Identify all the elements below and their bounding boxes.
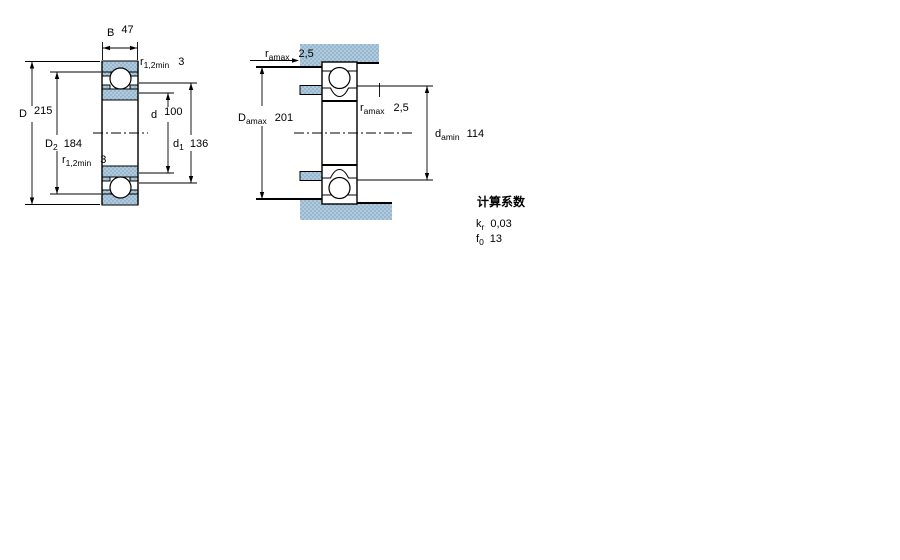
calculation-factors: 计算系数 kr0,03 f013 bbox=[476, 194, 526, 247]
ball-top bbox=[110, 68, 131, 89]
dim-r12min-bottom-label: r1,2min3 bbox=[62, 154, 106, 168]
dim-shoulder-diameter-d1: d1136 bbox=[139, 83, 215, 183]
housing-section bbox=[256, 44, 392, 220]
front-view-drawing: B47 D215 D2184 bbox=[16, 24, 215, 205]
dim-ra-mid-label: ramax2,5 bbox=[360, 102, 409, 116]
dim-D2-label: D2184 bbox=[45, 138, 82, 152]
calculation-factors-heading: 计算系数 bbox=[477, 194, 526, 209]
ball-bottom bbox=[110, 177, 131, 198]
dim-recess-diameter-D2: D2184 bbox=[42, 72, 101, 194]
dim-r12min-top-label: r1,2min3 bbox=[140, 56, 184, 70]
dim-Da-label: Damax201 bbox=[238, 112, 293, 126]
dim-housing-abutment-Da: Damax201 bbox=[238, 67, 293, 199]
dim-bore-diameter-d: d100 bbox=[139, 93, 185, 173]
calc-factor-f0: f013 bbox=[476, 233, 502, 247]
dim-ra-top-label: ramax2,5 bbox=[265, 48, 314, 62]
mounted-view-drawing: Damax201 ramax2,5 ramax2,5 damin114 bbox=[238, 44, 484, 220]
dim-shaft-abutment-da: damin114 bbox=[358, 86, 485, 180]
calc-factor-kr: kr0,03 bbox=[476, 218, 512, 232]
dim-fillet-ra-mid: ramax2,5 bbox=[360, 83, 409, 116]
dim-d1-label: d1136 bbox=[173, 138, 208, 152]
ball-top bbox=[329, 68, 350, 89]
bearing-dimension-figure: B47 D215 D2184 bbox=[0, 0, 900, 560]
ball-bottom bbox=[329, 178, 350, 199]
dim-B-label: B47 bbox=[107, 24, 134, 39]
dim-da-label: damin114 bbox=[435, 128, 484, 142]
technical-drawing: B47 D215 D2184 bbox=[0, 0, 900, 560]
dim-outer-diameter-D: D215 bbox=[16, 62, 100, 205]
dim-width-B: B47 bbox=[103, 24, 138, 60]
